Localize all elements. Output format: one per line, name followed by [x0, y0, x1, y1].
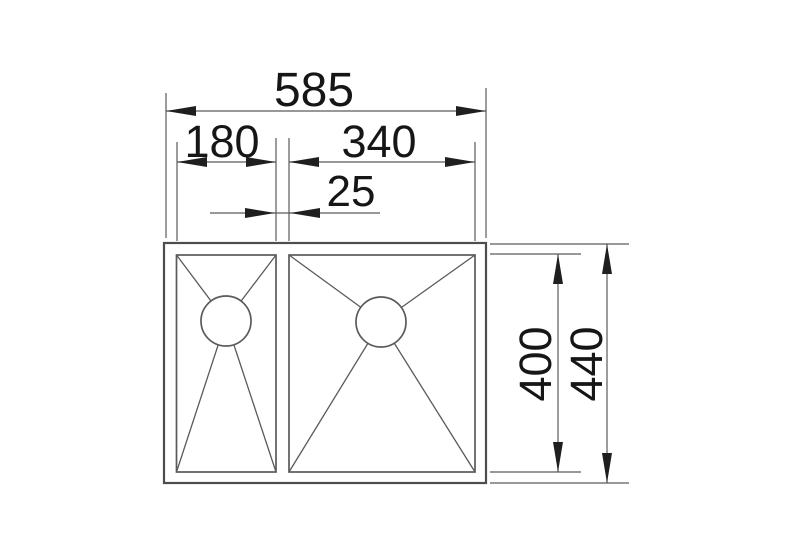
sink-outline: [164, 243, 486, 483]
dim-right-bowl-width: 340: [289, 116, 475, 241]
arrow-left-icon: [290, 208, 320, 218]
right-bowl-rect: [289, 255, 475, 472]
arrow-up-icon: [602, 244, 612, 274]
dim-left-bowl-width: 180: [177, 116, 276, 241]
dimensions: 585 180 340: [166, 64, 629, 483]
arrow-left-icon: [166, 106, 196, 116]
left-bowl-drain-icon: [201, 296, 251, 346]
arrow-right-icon: [245, 208, 275, 218]
arrow-down-icon: [553, 442, 563, 472]
right-bowl-corner-line-bottom-right: [381, 322, 475, 472]
arrow-left-icon: [289, 157, 319, 167]
dim-label-overall-width: 585: [274, 64, 354, 117]
left-bowl: [177, 255, 277, 472]
arrow-right-icon: [445, 157, 475, 167]
dim-label-left-bowl-width: 180: [184, 116, 259, 167]
right-bowl: [289, 255, 475, 472]
arrow-down-icon: [602, 453, 612, 483]
right-bowl-drain-icon: [356, 297, 406, 347]
drawing-page: 585 180 340: [0, 0, 800, 560]
dim-label-overall-length: 440: [561, 326, 612, 401]
right-bowl-corner-line-bottom-left: [289, 322, 381, 472]
arrow-right-icon: [456, 106, 486, 116]
dim-label-bowl-length: 400: [510, 326, 561, 401]
dim-bowl-gap: 25: [210, 167, 380, 218]
sink-dimension-drawing: 585 180 340: [0, 0, 800, 560]
left-bowl-rect: [177, 255, 277, 472]
dim-label-right-bowl-width: 340: [341, 116, 416, 167]
arrow-up-icon: [553, 254, 563, 284]
dim-label-bowl-gap: 25: [327, 167, 376, 216]
